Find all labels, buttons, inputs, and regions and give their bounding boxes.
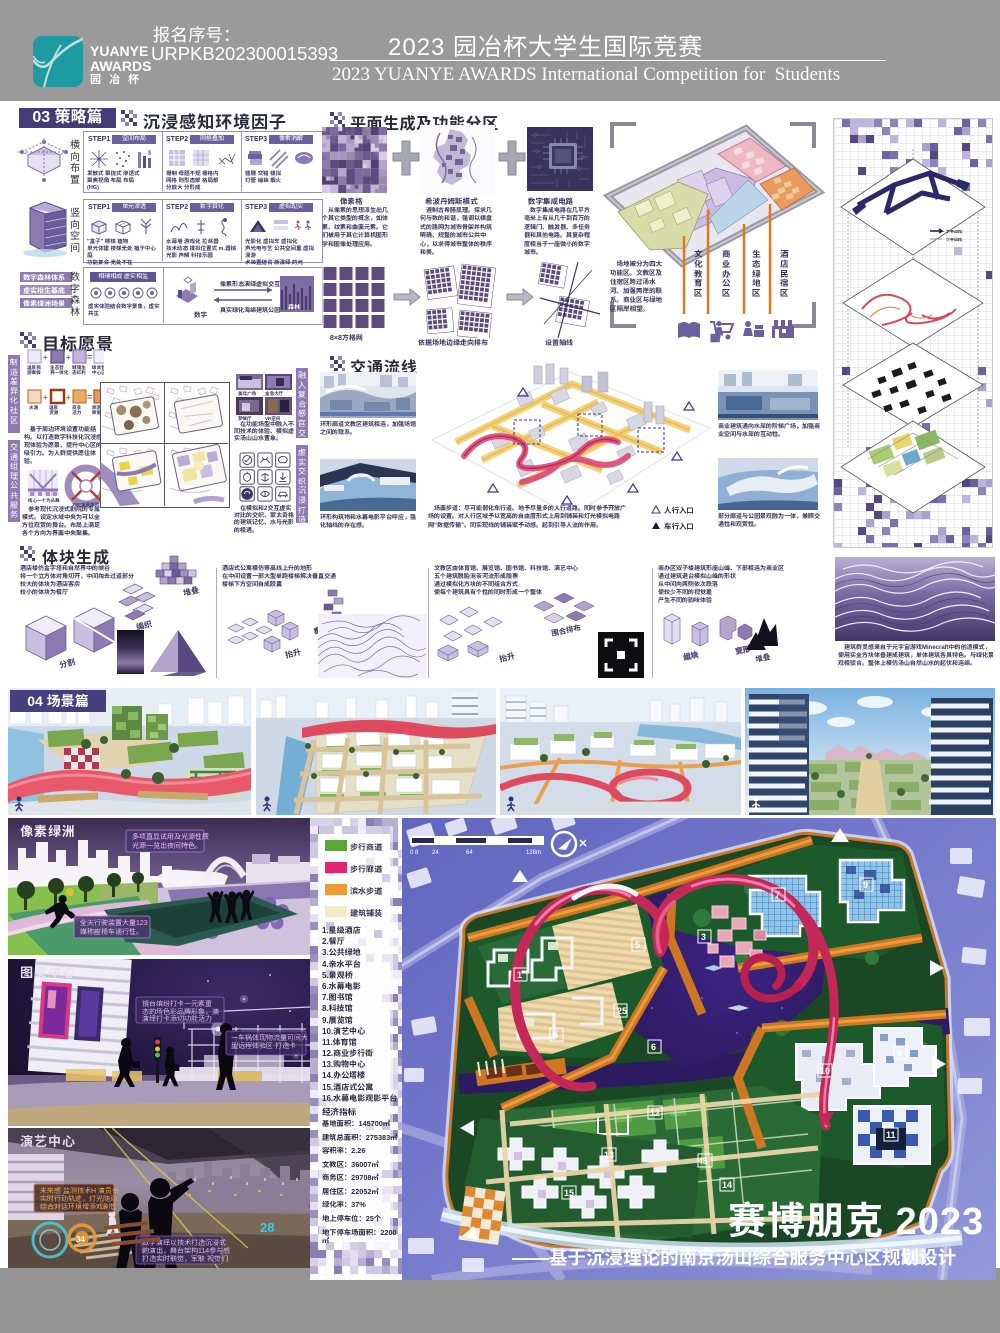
svg-text:组块: 组块 [683,650,700,662]
svg-text:像素绿洲: 像素绿洲 [20,824,76,839]
svg-text:抬升: 抬升 [284,646,302,660]
svg-text:媒称座椅车通行性。: 媒称座椅车通行性。 [80,927,143,936]
svg-text:态的场色彩品牌形象，澳: 态的场色彩品牌形象，澳 [142,1007,219,1016]
svg-text:I3: I3 [700,1156,708,1166]
svg-text:5: 5 [635,940,640,950]
svg-text:围合排布: 围合排布 [551,623,582,638]
svg-text:12: 12 [650,1108,660,1118]
svg-text:车行入口: 车行入口 [664,522,694,531]
svg-text:15: 15 [564,1188,574,1198]
svg-text:堆叠: 堆叠 [182,584,200,598]
svg-text:抬升: 抬升 [498,650,516,664]
svg-text:养一体化: 养一体化 [49,369,69,375]
svg-text:一车祸体现物流量可间大: 一车祸体现物流量可间大 [231,1033,309,1042]
svg-text:中心区: 中心区 [92,369,104,375]
svg-text:全天行驶装置大量123: 全天行驶装置大量123 [80,918,148,927]
svg-text:虚实相生基底: 虚实相生基底 [23,287,65,295]
svg-text:25: 25 [617,1006,627,1016]
svg-text:态红利: 态红利 [71,369,86,375]
svg-text:演艺中心: 演艺中心 [20,1134,76,1149]
svg-text:像素绿洲场景: 像素绿洲场景 [23,299,65,308]
svg-text:28: 28 [260,1220,274,1235]
svg-text:64: 64 [466,850,473,856]
svg-text:人行入口: 人行入口 [664,506,694,515]
svg-text:+: + [66,393,71,402]
svg-text:10: 10 [820,1066,830,1076]
svg-text:数字森林体系: 数字森林体系 [23,273,65,282]
svg-text:4: 4 [553,1030,558,1040]
svg-text:实时行动轨迹，灯光随动: 实时行动轨迹，灯光随动 [40,1194,117,1203]
svg-text:图灵中心: 图灵中心 [20,965,76,980]
svg-text:0 8: 0 8 [410,850,419,856]
svg-text:真实绿化海绵建筑公园: 真实绿化海绵建筑公园 [220,306,280,314]
svg-text:次要道路: 次要道路 [946,237,962,242]
svg-text:资源: 资源 [49,409,59,415]
svg-text:6: 6 [651,1042,656,1052]
svg-text:13: 13 [604,1150,614,1160]
svg-text:水源: 水源 [28,404,39,410]
svg-text:活力: 活力 [72,410,82,415]
svg-text:7: 7 [775,890,780,900]
svg-text:+: + [43,353,48,362]
svg-text:演绎打卡添切功能活力: 演绎打卡添切功能活力 [142,1014,212,1023]
svg-text:街心一个为头舞台: 街心一个为头舞台 [27,497,60,503]
svg-text:森林: 森林 [288,304,301,311]
svg-text:3: 3 [701,932,706,942]
svg-text:=: = [87,392,92,402]
svg-text:14: 14 [722,1180,732,1190]
svg-text:34: 34 [76,1235,85,1244]
svg-text:+: + [43,393,48,402]
svg-text:像素形态演绎虚拟交互: 像素形态演绎虚拟交互 [220,280,280,288]
svg-text:镜台缤纷打卡一元素重: 镜台缤纷打卡一元素重 [142,999,212,1008]
svg-text:11: 11 [886,1130,896,1140]
svg-text:分割: 分割 [58,656,76,670]
svg-text:多项直显试用及光源性质: 多项直显试用及光源性质 [132,832,209,841]
svg-text:数字: 数字 [193,311,208,319]
svg-text:打造实时联觉，军联 视觉们: 打造实时联觉，军联 视觉们 [142,1254,228,1263]
svg-text:的演出，舞台架构114参与感: 的演出，舞台架构114参与感 [142,1246,230,1255]
svg-text:=: = [87,352,92,362]
svg-text:堆叠: 堆叠 [755,652,772,664]
svg-text:型远程体验区 打造卡: 型远程体验区 打造卡 [231,1041,296,1050]
svg-text:1: 1 [517,970,522,980]
svg-text:赛博朋克 2023: 赛博朋克 2023 [728,1201,984,1243]
svg-text:9: 9 [863,880,868,890]
svg-text:未来感 监测技术H 演员会: 未来感 监测技术H 演员会 [40,1186,120,1195]
svg-text:24: 24 [432,850,439,856]
svg-text:+: + [66,353,71,362]
svg-text:光源一览出夜间特色。: 光源一览出夜间特色。 [132,841,202,850]
svg-text:128m: 128m [526,850,541,856]
svg-text:主要道路: 主要道路 [946,229,962,234]
svg-text:游度假: 游度假 [26,369,41,375]
svg-text:8: 8 [897,1048,902,1058]
svg-text:结合对话环境增添戏剧性: 结合对话环境增添戏剧性 [40,1202,117,1211]
svg-text:——基于沉浸理论的南京汤山综合服务中心区规划设计: ——基于沉浸理论的南京汤山综合服务中心区规划设计 [512,1247,957,1268]
